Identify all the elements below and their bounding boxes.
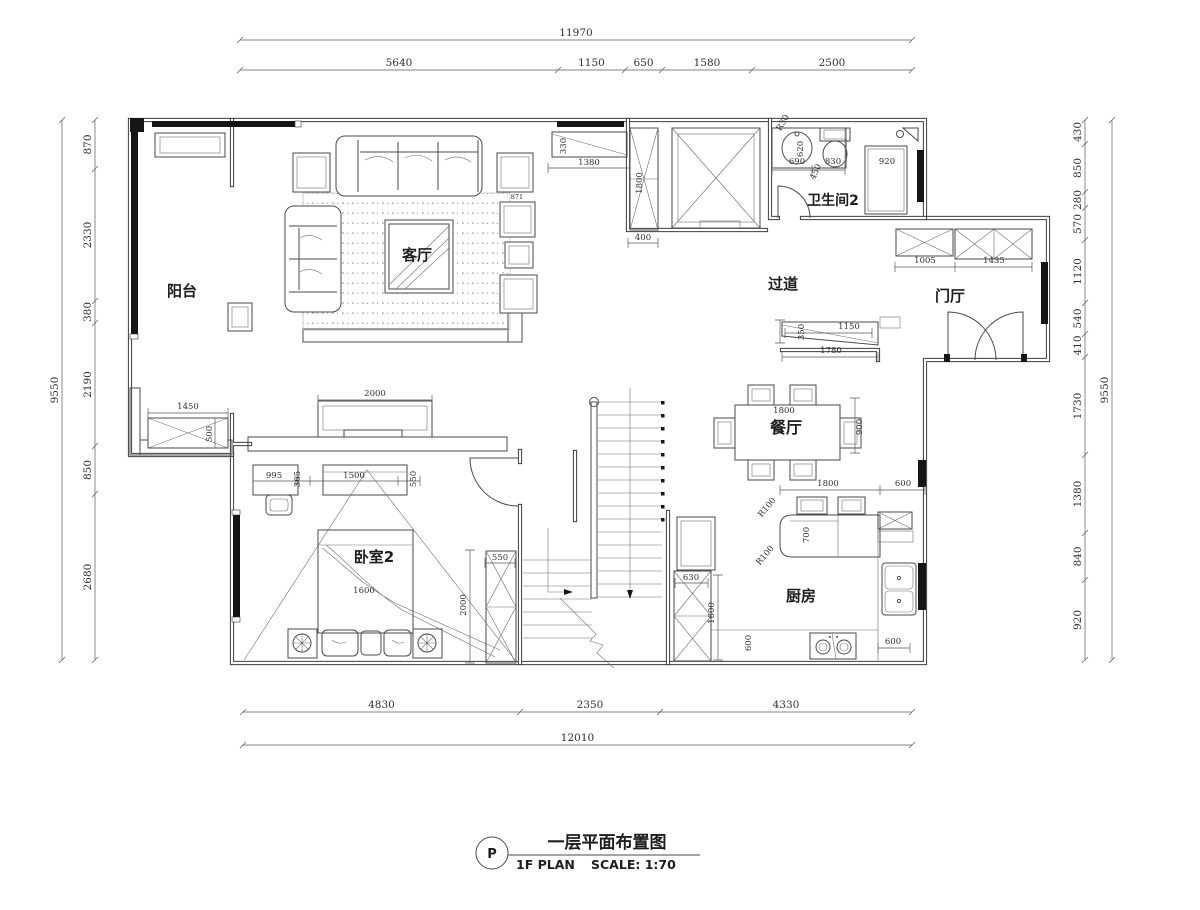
dim-chain-right-total: 9550 [1099,117,1115,663]
skylight-void [672,128,760,228]
room-label-balcony: 阳台 [167,282,197,300]
dim-chain-right-segments-value-8: 1380 [1072,481,1084,508]
dim-chain-left-segments-value-1: 2330 [82,222,94,249]
dim-bath-R30: R30 [775,113,792,133]
dim-chain-top-segments-value-4: 2500 [819,57,846,69]
gas-stove [810,633,856,659]
dim-chain-top-segments-value-2: 650 [633,57,653,69]
dim-chain-left-segments-value-4: 850 [82,460,94,480]
armchair-1 [500,202,535,237]
foyer-cabinet-1435 [955,229,1032,259]
nightstand-left [288,629,317,658]
dim-chain-bottom-segments-value-2: 4330 [773,699,800,711]
sofa-three-seat [336,136,482,196]
dim-bed-1600: 1600 [353,586,375,596]
room-label-foyer: 门厅 [935,287,965,305]
foyer-cabinet-1005 [896,229,953,256]
dim-wardrobe-2000: 2000 [459,594,469,616]
stair-break-line [560,598,614,668]
dim-bath-620: 620 [796,141,806,157]
kitchen-island [780,515,880,557]
dim-chair-871: 871 [511,193,523,201]
stair-handrail [591,402,597,598]
dim-corr-1150: 1150 [838,322,860,332]
kitchen [674,497,916,662]
dim-bath-450: 450 [808,163,824,182]
dim-chain-top-total-value-0: 11970 [559,27,592,39]
dim-bed-365: 365 [293,471,303,487]
dim-tvwall-2000: 2000 [364,389,386,399]
living-room [285,132,627,330]
dim-top-cabinet-1380: 1380 [578,158,600,168]
dim-chain-top-segments-value-0: 5640 [386,57,413,69]
room-label-corridor: 过道 [768,275,798,293]
bath-door[interactable] [778,186,810,218]
dim-bed-1500: 1500 [343,471,365,481]
dim-chain-right-segments-value-2: 280 [1072,190,1084,210]
balcony-cabinet [148,418,228,448]
dim-chains-layer: 1197056401150650158025009550870233038021… [49,27,1115,748]
dim-foyer-1005: 1005 [914,256,936,266]
dim-bed-995: 995 [266,471,282,481]
headboard-shelf [323,465,407,495]
dim-chain-left-segments: 870233038021908502680 [82,117,98,663]
annotations-layer: 阳台客厅过道卫生间2门厅餐厅卧室2厨房138033018004006908304… [167,113,1005,651]
dim-chain-right-segments-value-1: 850 [1072,158,1084,178]
bar-stools [797,497,865,514]
dim-cabinet-630: 630 [683,573,699,583]
dim-island-600: 600 [895,479,911,489]
dim-corr-350: 350 [797,324,807,340]
dim-wardrobe-550: 550 [492,553,508,563]
dim-chain-left-segments-value-5: 2680 [82,564,94,591]
room-label-bedroom2: 卧室2 [354,548,394,566]
dim-chain-top-segments-value-3: 1580 [694,57,721,69]
dim-island-R100a: R100 [756,496,778,520]
dim-chain-right-segments-value-10: 920 [1072,610,1084,630]
floorplan-canvas: P 一层平面布置图 1F PLAN SCALE: 1:70 1197056401… [0,0,1200,910]
dim-chain-right-segments-value-7: 1730 [1072,393,1084,420]
dim-island-R100b: R100 [754,544,776,568]
dim-chain-left-segments-value-3: 2190 [82,371,94,398]
dim-chain-bottom-total-value-0: 12010 [561,732,594,744]
dim-island-1800: 1800 [817,479,839,489]
side-table-left [293,153,330,192]
dim-corr-1780: 1780 [820,346,842,356]
dim-cabinet-1600: 1600 [707,602,717,624]
bedroom-door[interactable] [470,458,518,506]
dim-bath-920: 920 [879,157,895,167]
shower-area [865,128,918,214]
kitchen-window-lower [918,563,926,610]
title-cn: 一层平面布置图 [548,832,667,853]
title-bubble-letter: P [487,847,497,862]
dim-chain-right-segments-value-9: 840 [1072,546,1084,566]
dim-chain-left-total: 9550 [49,117,65,663]
armchair-2 [505,242,533,268]
dim-bed-550: 550 [409,471,419,487]
floorplan-drawing: P 一层平面布置图 1F PLAN SCALE: 1:70 1197056401… [0,0,1200,910]
stair-balusters [661,401,665,522]
foyer-window [1041,262,1048,324]
dim-chain-right-segments-value-6: 410 [1072,335,1084,355]
dim-chain-top-segments-value-1: 1150 [578,57,605,69]
kitchen-window-upper [918,460,926,487]
armchair-3 [500,275,537,313]
room-label-dining: 餐厅 [769,418,802,437]
dim-chain-top-total: 11970 [237,27,915,43]
tv-wall-bedroom [248,437,507,451]
dim-bath-830: 830 [825,157,841,167]
dim-chain-top-segments: 5640115065015802500 [237,57,915,73]
dim-chain-left-segments-value-2: 380 [82,302,94,322]
balcony [148,133,252,448]
dim-chain-right-segments-value-5: 540 [1072,308,1084,328]
living-top-window [557,121,624,127]
sofa-two-seat [285,206,341,312]
dim-dining-1800: 1800 [773,406,795,416]
kitchen-tall-cabinet [674,571,711,661]
staircase [523,388,665,668]
walls [130,120,1048,663]
title-en: 1F PLAN [516,857,575,872]
dim-chain-right-segments: 430850280570112054041017301380840920 [1072,117,1088,663]
window-corner-block [130,118,144,132]
dim-chain-bottom-segments: 483023504330 [240,699,915,715]
bed [318,530,500,657]
room-label-living: 客厅 [401,246,432,264]
bedroom-wardrobe [486,551,516,663]
dim-chain-right-segments-value-0: 430 [1072,122,1084,142]
dim-balcony-1450: 1450 [177,402,199,412]
dim-chain-bottom-total: 12010 [240,732,915,748]
entry-door-left[interactable] [944,312,996,362]
tv-console [318,401,432,437]
bath-window [917,150,924,202]
dim-chain-bottom-segments-value-0: 4830 [368,699,395,711]
windows [130,118,1048,622]
balcony-top-window [152,121,300,127]
interior-dim-lines [148,163,1032,663]
dim-island-700: 700 [802,527,812,543]
room-label-bath2: 卫生间2 [807,192,859,209]
dim-sink-600: 600 [885,637,901,647]
dim-shaft-400: 400 [635,233,651,243]
dim-chain-bottom-segments-value-1: 2350 [577,699,604,711]
dim-chain-left-segments-value-0: 870 [82,134,94,154]
title-scale: SCALE: 1:70 [591,857,676,872]
dim-bath-690: 690 [789,157,805,167]
dim-chain-right-segments-value-4: 1120 [1072,258,1084,285]
balcony-side-window [131,130,138,338]
dim-balcony-500: 500 [205,426,215,442]
dim-chain-left-total-value-0: 9550 [49,377,61,404]
nightstand-right [413,629,442,658]
fridge [677,517,715,570]
dim-stove-600: 600 [744,635,754,651]
dim-chain-right-segments-value-3: 570 [1072,214,1084,234]
bedroom2 [244,401,518,663]
room-label-kitchen: 厨房 [786,587,816,605]
kitchen-sink [882,563,916,615]
title-block: P 一层平面布置图 1F PLAN SCALE: 1:70 [476,832,700,872]
dim-top-cabinet-330: 330 [559,138,569,154]
dim-shaft-1800: 1800 [635,172,645,194]
entry-door-right[interactable] [975,312,1027,362]
dim-chain-right-total-value-0: 9550 [1099,377,1111,404]
side-table-right [497,153,533,192]
dim-dining-900: 900 [855,419,865,435]
dim-foyer-1435: 1435 [983,256,1005,266]
balcony-planter [155,133,225,157]
bedroom-window [233,512,240,620]
